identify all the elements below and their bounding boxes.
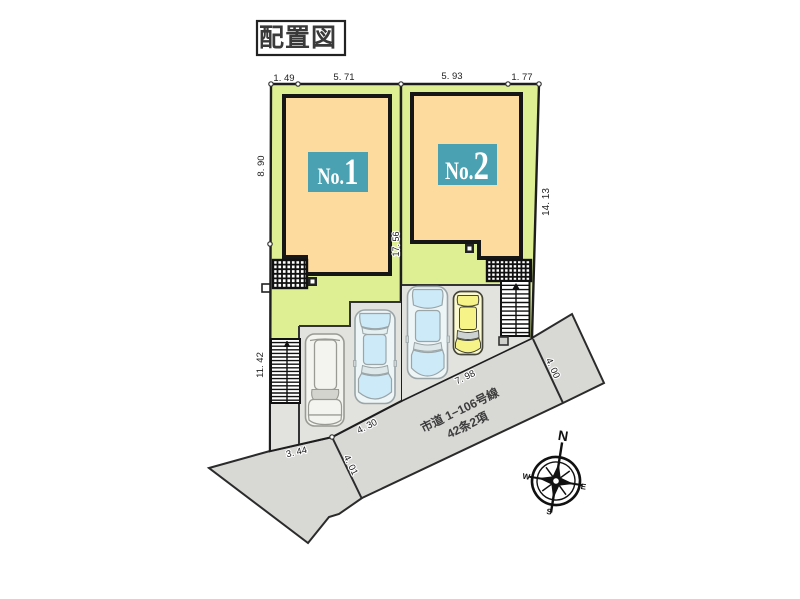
svg-text:5. 93: 5. 93 [441, 71, 462, 82]
svg-text:W: W [522, 472, 531, 482]
svg-text:8. 90: 8. 90 [256, 155, 267, 176]
svg-text:14. 13: 14. 13 [541, 188, 552, 216]
svg-text:1. 77: 1. 77 [511, 72, 532, 83]
svg-text:17. 56: 17. 56 [391, 231, 401, 256]
svg-text:N: N [557, 427, 570, 444]
svg-text:5. 71: 5. 71 [333, 72, 354, 83]
svg-text:11. 42: 11. 42 [255, 352, 266, 378]
svg-text:E: E [580, 482, 587, 492]
svg-text:1. 49: 1. 49 [273, 73, 294, 84]
svg-text:配置図: 配置図 [259, 24, 337, 52]
